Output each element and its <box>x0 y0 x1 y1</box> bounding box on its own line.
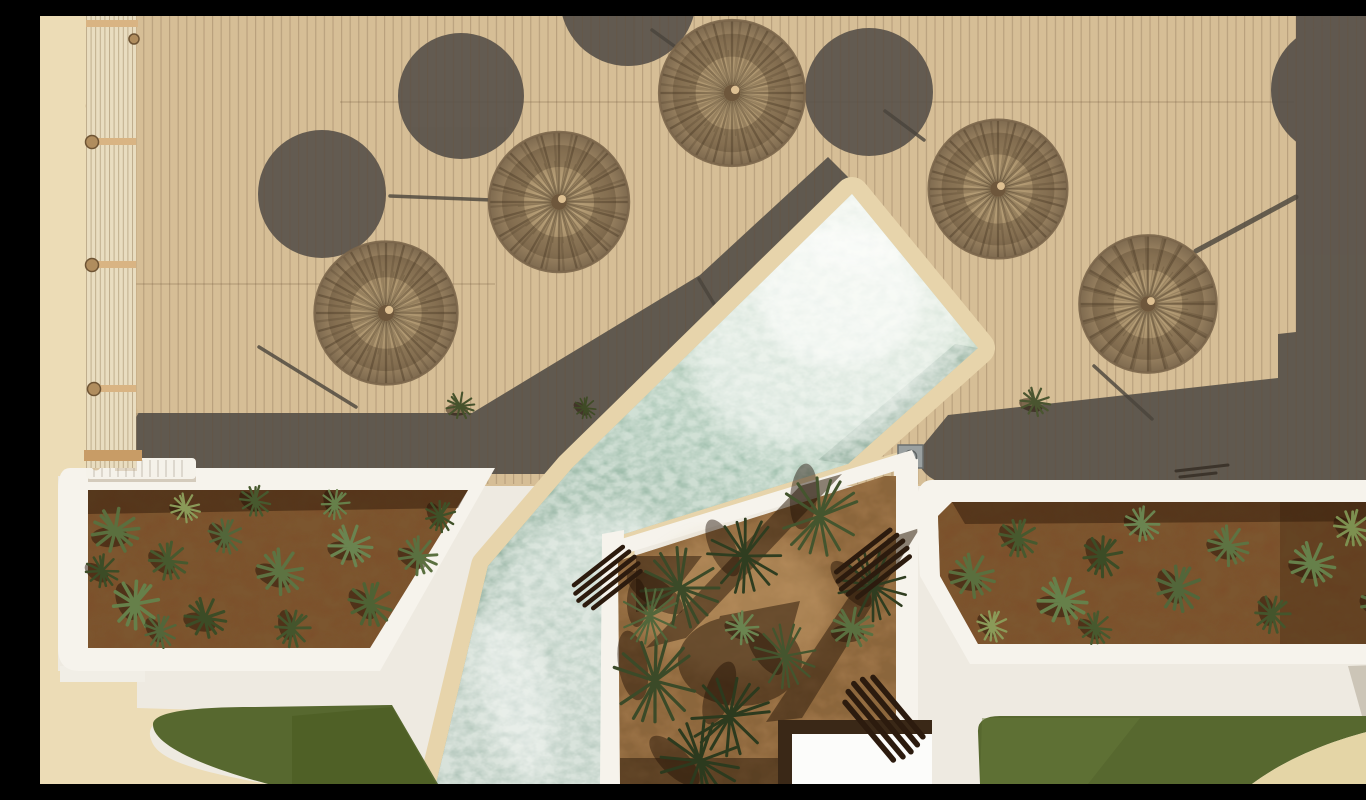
pergola-structure <box>84 16 142 471</box>
aerial-resort-photo <box>40 16 1366 784</box>
aerial-photo-canvas <box>40 16 1366 784</box>
right-succulent-planter <box>916 480 1366 664</box>
